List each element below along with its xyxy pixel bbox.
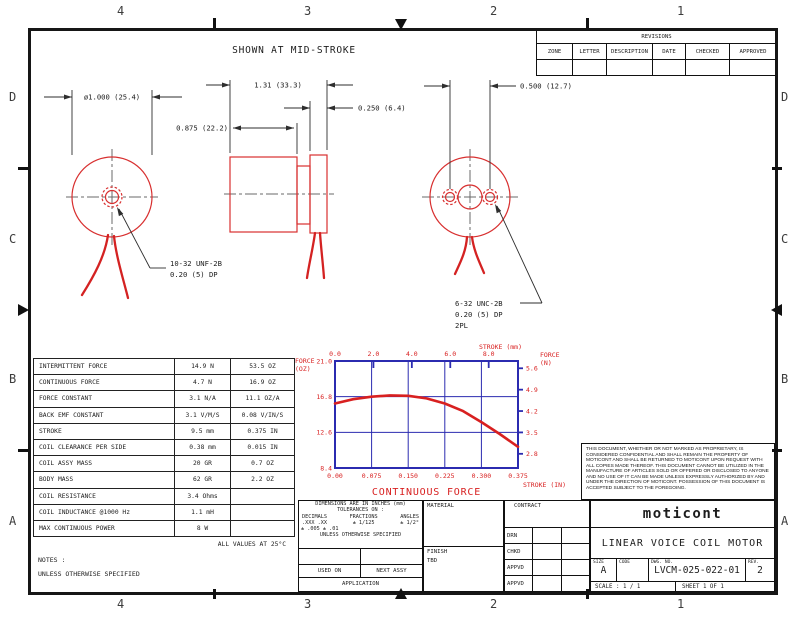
spec-cell: 0.38 mm bbox=[175, 439, 231, 455]
spec-row: COIL INDUCTANCE @1000 Hz1.1 mH bbox=[34, 504, 295, 520]
zone-label: 2 bbox=[490, 597, 497, 611]
spec-row: CONTINUOUS FORCE4.7 N16.9 OZ bbox=[34, 375, 295, 391]
next-assy-label: NEXT ASSY bbox=[361, 565, 422, 577]
finish-cell: FINISH TBD bbox=[424, 546, 503, 591]
zone-label: C bbox=[9, 232, 16, 246]
spec-cell: FORCE CONSTANT bbox=[34, 391, 175, 407]
material-block: MATERIAL FINISH TBD bbox=[423, 500, 504, 592]
approval-label: CHKD bbox=[505, 544, 533, 559]
bottom-axis-tick-label: 0.375 bbox=[508, 472, 528, 480]
bottom-axis-tick-label: 0.00 bbox=[327, 472, 343, 480]
zone-label: B bbox=[9, 372, 16, 386]
approval-empty-cell bbox=[533, 544, 562, 559]
approval-row: CHKD bbox=[505, 543, 589, 559]
right-axis-tick-label: 3.5 bbox=[526, 429, 538, 437]
top-axis-tick-label: 6.0 bbox=[444, 350, 456, 358]
revisions-col-date: DATE bbox=[653, 44, 686, 59]
left-axis-tick-label: 8.4 bbox=[320, 464, 332, 472]
spec-cell: 8 W bbox=[175, 520, 231, 536]
border-tick bbox=[213, 589, 216, 599]
spec-footnote: ALL VALUES AT 25°C bbox=[33, 541, 286, 548]
spec-cell: 9.5 mm bbox=[175, 423, 231, 439]
spec-cell: 3.1 V/M/S bbox=[175, 407, 231, 423]
spec-row: COIL RESISTANCE3.4 Ohms bbox=[34, 488, 295, 504]
approval-empty-cell bbox=[533, 560, 562, 575]
right-axis-tick-label: 2.8 bbox=[526, 450, 538, 458]
sheet-cell: SHEET 1 OF 1 bbox=[675, 582, 774, 591]
dimension-lines bbox=[44, 80, 542, 303]
zone-label: 1 bbox=[677, 4, 684, 18]
spec-cell: 0.7 OZ bbox=[231, 456, 295, 472]
thread-callout-left-1: 10-32 UNF-2B bbox=[170, 259, 222, 268]
revisions-col-checked: CHECKED bbox=[686, 44, 730, 59]
zone-label: 3 bbox=[304, 597, 311, 611]
thread-callout-right-3: 2PL bbox=[455, 321, 468, 330]
side-view-neck bbox=[297, 166, 310, 224]
spec-cell: 16.9 OZ bbox=[231, 375, 295, 391]
spec-cell: 3.1 N/A bbox=[175, 391, 231, 407]
approval-empty-cell bbox=[562, 528, 590, 543]
thread-callout-right-1: 6-32 UNC-2B bbox=[455, 299, 503, 308]
spec-cell: COIL INDUCTANCE @1000 Hz bbox=[34, 504, 175, 520]
approval-label: DRN bbox=[505, 528, 533, 543]
thread-callout-right-2: 0.20 (5) DP bbox=[455, 310, 503, 319]
left-axis-tick-label: 21.0 bbox=[316, 357, 332, 365]
notes-line-2: UNLESS OTHERWISE SPECIFIED bbox=[38, 570, 140, 578]
approval-empty-cell bbox=[533, 528, 562, 543]
mechanical-views: SHOWN AT MID-STROKE bbox=[28, 28, 588, 340]
zone-label: 3 bbox=[304, 4, 311, 18]
approval-label: APPVD bbox=[505, 576, 533, 591]
bottom-axis-tick-label: 0.150 bbox=[398, 472, 418, 480]
approval-empty-cell bbox=[562, 560, 590, 575]
caption-mid-stroke: SHOWN AT MID-STROKE bbox=[232, 45, 356, 56]
spec-row: INTERMITTENT FORCE14.9 N53.5 OZ bbox=[34, 359, 295, 375]
finish-value: TBD bbox=[427, 558, 500, 564]
code-label: CODE bbox=[619, 560, 646, 565]
dim-plate: 0.250 (6.4) bbox=[358, 104, 406, 113]
zone-label: A bbox=[781, 514, 788, 528]
approval-row: DRN bbox=[505, 527, 589, 543]
spec-cell: 4.7 N bbox=[175, 375, 231, 391]
used-on-label: USED ON bbox=[299, 565, 361, 577]
drawing-sheet: 43214321DCBADCBA REVISIONS ZONELETTERDES… bbox=[0, 0, 800, 618]
left-axis-title-unit: (OZ) bbox=[295, 365, 311, 373]
revisions-col-description: DESCRIPTION bbox=[607, 44, 653, 59]
spec-cell: 0.08 V/IN/S bbox=[231, 407, 295, 423]
notes-line-1: NOTES : bbox=[38, 556, 65, 564]
right-axis-tick-label: 5.6 bbox=[526, 365, 538, 373]
border-tick bbox=[586, 18, 589, 28]
brand-logo: moticont bbox=[591, 501, 774, 528]
dwg-no-cell: DWG. NO. LVCM-025-022-01 bbox=[649, 559, 746, 581]
right-axis-tick-label: 4.2 bbox=[526, 407, 538, 415]
right-axis-tick-label: 4.9 bbox=[526, 386, 538, 394]
tol-line-6: UNLESS OTHERWISE SPECIFIED bbox=[299, 532, 422, 538]
top-axis-title: STROKE (mm) bbox=[479, 343, 522, 351]
zone-label: 2 bbox=[490, 4, 497, 18]
zone-label: D bbox=[9, 90, 16, 104]
spec-row: BODY MASS62 GR2.2 OZ bbox=[34, 472, 295, 488]
spec-cell: COIL RESISTANCE bbox=[34, 488, 175, 504]
tolerance-block: DIMENSIONS ARE IN INCHES (mm) TOLERANCES… bbox=[298, 500, 423, 592]
rev-value: 2 bbox=[748, 565, 772, 576]
approval-row: APPVD bbox=[505, 575, 589, 591]
spec-cell: BODY MASS bbox=[34, 472, 175, 488]
approval-empty-cell bbox=[533, 576, 562, 591]
zone-label: 4 bbox=[117, 597, 124, 611]
revisions-empty-cell bbox=[653, 60, 686, 75]
code-cell: CODE bbox=[617, 559, 649, 581]
revisions-empty-cell bbox=[730, 60, 776, 75]
spec-cell: 14.9 N bbox=[175, 359, 231, 375]
spec-row: FORCE CONSTANT3.1 N/A11.1 OZ/A bbox=[34, 391, 295, 407]
approval-row: APPVD bbox=[505, 559, 589, 575]
spec-cell: 1.1 mH bbox=[175, 504, 231, 520]
spec-cell: MAX CONTINUOUS POWER bbox=[34, 520, 175, 536]
border-tick bbox=[213, 18, 216, 28]
application-label: APPLICATION bbox=[299, 578, 422, 589]
title-block: moticont LINEAR VOICE COIL MOTOR SIZE A … bbox=[590, 500, 775, 592]
border-tick bbox=[772, 167, 782, 170]
revisions-empty-cell bbox=[686, 60, 730, 75]
zone-label: 1 bbox=[677, 597, 684, 611]
spec-cell: 20 GR bbox=[175, 456, 231, 472]
spec-cell: INTERMITTENT FORCE bbox=[34, 359, 175, 375]
spec-cell: 0.015 IN bbox=[231, 439, 295, 455]
spec-row: COIL CLEARANCE PER SIDE0.38 mm0.015 IN bbox=[34, 439, 295, 455]
lead-wires bbox=[82, 233, 484, 298]
bottom-axis-title: STROKE (IN) bbox=[523, 481, 566, 489]
material-cell: MATERIAL bbox=[424, 501, 503, 546]
bottom-axis-tick-label: 0.075 bbox=[362, 472, 382, 480]
spec-cell: CONTINUOUS FORCE bbox=[34, 375, 175, 391]
spec-table: INTERMITTENT FORCE14.9 N53.5 OZCONTINUOU… bbox=[33, 358, 295, 537]
spec-row: COIL ASSY MASS20 GR0.7 OZ bbox=[34, 456, 295, 472]
spec-cell: STROKE bbox=[34, 423, 175, 439]
dimension-arrowheads bbox=[64, 83, 501, 217]
spec-cell: 2.2 OZ bbox=[231, 472, 295, 488]
next-assy-empty-cell bbox=[361, 549, 422, 564]
spec-row: STROKE9.5 mm0.375 IN bbox=[34, 423, 295, 439]
contract-block: CONTRACT DRNCHKDAPPVDAPPVD bbox=[504, 500, 590, 592]
revisions-empty-cell bbox=[607, 60, 653, 75]
contract-label: CONTRACT bbox=[505, 501, 589, 527]
force-curve bbox=[335, 395, 518, 446]
approval-label: APPVD bbox=[505, 560, 533, 575]
border-tick bbox=[18, 167, 28, 170]
center-arrow-icon bbox=[771, 304, 782, 316]
left-axis-tick-label: 12.6 bbox=[316, 429, 332, 437]
spec-cell: 11.1 OZ/A bbox=[231, 391, 295, 407]
top-axis-tick-label: 4.0 bbox=[406, 350, 418, 358]
material-label: MATERIAL bbox=[427, 503, 500, 509]
right-axis-title: FORCE bbox=[540, 351, 560, 359]
drawing-title: LINEAR VOICE COIL MOTOR bbox=[591, 528, 774, 559]
bottom-axis-tick-label: 0.225 bbox=[435, 472, 455, 480]
size-value: A bbox=[593, 565, 614, 576]
approval-empty-cell bbox=[562, 576, 590, 591]
spec-cell: BACK EMF CONSTANT bbox=[34, 407, 175, 423]
spec-cell: 62 GR bbox=[175, 472, 231, 488]
spec-cell: COIL ASSY MASS bbox=[34, 456, 175, 472]
spec-cell: 0.375 IN bbox=[231, 423, 295, 439]
tol-angles-value: ± 1/2° bbox=[400, 520, 419, 526]
zone-label: B bbox=[781, 372, 788, 386]
left-axis-title: FORCE bbox=[295, 357, 315, 365]
revisions-col-approved: APPROVED bbox=[730, 44, 776, 59]
top-axis-tick-label: 2.0 bbox=[368, 350, 380, 358]
dim-diameter: ø1.000 (25.4) bbox=[84, 93, 140, 102]
spec-cell bbox=[231, 488, 295, 504]
zone-label: 4 bbox=[117, 4, 124, 18]
dim-body: 0.875 (22.2) bbox=[176, 124, 228, 133]
used-on-empty-cell bbox=[299, 549, 361, 564]
border-tick bbox=[18, 449, 28, 452]
spec-row: MAX CONTINUOUS POWER8 W bbox=[34, 520, 295, 536]
dwg-no-value: LVCM-025-022-01 bbox=[651, 565, 743, 576]
spec-cell: COIL CLEARANCE PER SIDE bbox=[34, 439, 175, 455]
zone-label: C bbox=[781, 232, 788, 246]
continuous-force-chart: 0.02.04.06.08.0STROKE (mm)0.000.0750.150… bbox=[288, 343, 580, 501]
finish-label: FINISH bbox=[427, 549, 500, 555]
zone-label: D bbox=[781, 90, 788, 104]
part-outlines bbox=[72, 155, 510, 237]
spec-cell: 3.4 Ohms bbox=[175, 488, 231, 504]
scale-cell: SCALE : 1 / 1 bbox=[591, 584, 675, 590]
size-cell: SIZE A bbox=[591, 559, 617, 581]
spec-cell bbox=[231, 520, 295, 536]
chart-frame bbox=[335, 361, 518, 468]
approval-empty-cell bbox=[562, 544, 590, 559]
scale-label: SCALE : bbox=[595, 584, 619, 590]
spec-cell: 53.5 OZ bbox=[231, 359, 295, 375]
chart-title: CONTINUOUS FORCE bbox=[372, 487, 481, 498]
dim-holes: 0.500 (12.7) bbox=[520, 82, 572, 91]
spec-cell bbox=[231, 504, 295, 520]
thread-callout-left-2: 0.20 (5) DP bbox=[170, 270, 218, 279]
rev-cell: REV. 2 bbox=[746, 559, 774, 581]
top-axis-tick-label: 8.0 bbox=[483, 350, 495, 358]
proprietary-notice: THIS DOCUMENT, WHETHER OR NOT MARKED AS … bbox=[581, 443, 775, 500]
dim-length: 1.31 (33.3) bbox=[254, 81, 302, 90]
spec-row: BACK EMF CONSTANT3.1 V/M/S0.08 V/IN/S bbox=[34, 407, 295, 423]
left-axis-tick-label: 16.8 bbox=[316, 393, 332, 401]
bottom-axis-tick-label: 0.300 bbox=[472, 472, 492, 480]
zone-label: A bbox=[9, 514, 16, 528]
scale-value: 1 / 1 bbox=[623, 584, 640, 590]
right-axis-title-unit: (N) bbox=[540, 359, 552, 367]
tol-fractions-value: ± 1/125 bbox=[353, 520, 375, 526]
